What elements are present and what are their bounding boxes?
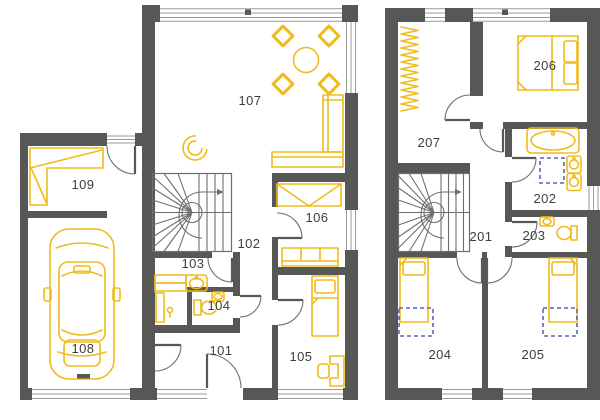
counter-103-icon <box>155 275 186 322</box>
upper-floor-plan: 201 202 203 204 205 206 207 <box>385 8 600 400</box>
car-plate <box>77 374 90 379</box>
door-room-104 <box>240 296 261 317</box>
car-icon <box>44 229 120 379</box>
room-101-label: 101 <box>210 343 233 358</box>
wardrobe-207-icon <box>401 27 418 111</box>
pillow-icon <box>564 63 577 84</box>
room-206-label: 206 <box>534 58 557 73</box>
ground-floor-plan: 101 102 103 104 105 106 107 108 109 <box>20 5 358 400</box>
room-205-label: 205 <box>522 347 545 362</box>
double-washbasin-icon <box>567 156 581 191</box>
window-mullion-tick <box>245 10 251 16</box>
pillow-icon <box>564 41 577 62</box>
room-105-label: 105 <box>290 349 313 364</box>
upper-floor-windows <box>425 8 600 400</box>
room-203-label: 203 <box>523 228 546 243</box>
tap-icon <box>552 132 555 135</box>
desk-chair-105-icon <box>318 356 344 386</box>
door-room-103 <box>208 258 232 282</box>
bed-204-icon <box>400 258 428 322</box>
door-room-204 <box>457 258 482 283</box>
floor-plan-canvas: 101 102 103 104 105 106 107 108 109 <box>0 0 600 420</box>
room-201-label: 201 <box>470 229 493 244</box>
door-room-105 <box>278 300 303 325</box>
pillow-icon <box>315 280 335 293</box>
sink-203-icon <box>540 217 554 226</box>
toilet-203-icon <box>557 226 577 240</box>
pillow-icon <box>552 262 574 275</box>
door-room-205 <box>487 258 512 283</box>
staircase-upper-icon <box>399 174 470 252</box>
room-202-label: 202 <box>534 191 557 206</box>
planned-shower-outline <box>540 158 564 183</box>
door-room-207 <box>445 95 470 120</box>
wardrobe-106-icon <box>277 184 341 206</box>
room-104-label: 104 <box>208 298 231 313</box>
room-106-label: 106 <box>306 210 329 225</box>
room-204-label: 204 <box>429 347 452 362</box>
room-102-label: 102 <box>238 236 261 251</box>
bed-105-icon <box>312 276 338 336</box>
floor-plan-drawing: 101 102 103 104 105 106 107 108 109 <box>0 0 600 420</box>
pillow-icon <box>403 262 425 275</box>
room-108-label: 108 <box>72 341 95 356</box>
door-garage-to-hall <box>155 345 181 371</box>
door-entrance <box>207 354 241 388</box>
bathtub-icon <box>527 128 579 153</box>
room-109-label: 109 <box>72 177 95 192</box>
door-room-206 <box>480 129 503 152</box>
door-room-202 <box>512 158 536 182</box>
armchair-icon <box>178 134 209 165</box>
dining-set-icon <box>273 26 339 94</box>
window-mullion-tick <box>502 10 508 16</box>
sofa-106-icon <box>282 248 338 266</box>
upper-floor-walls <box>385 8 600 400</box>
room-107-label: 107 <box>239 93 262 108</box>
chair-icon <box>318 364 329 378</box>
room-207-label: 207 <box>418 135 441 150</box>
corner-sofa-icon <box>272 95 343 167</box>
bed-205-icon <box>549 258 577 322</box>
door-room-109 <box>107 146 135 174</box>
room-103-label: 103 <box>182 256 205 271</box>
staircase-ground-icon <box>153 174 232 252</box>
door-room-106 <box>277 213 302 238</box>
